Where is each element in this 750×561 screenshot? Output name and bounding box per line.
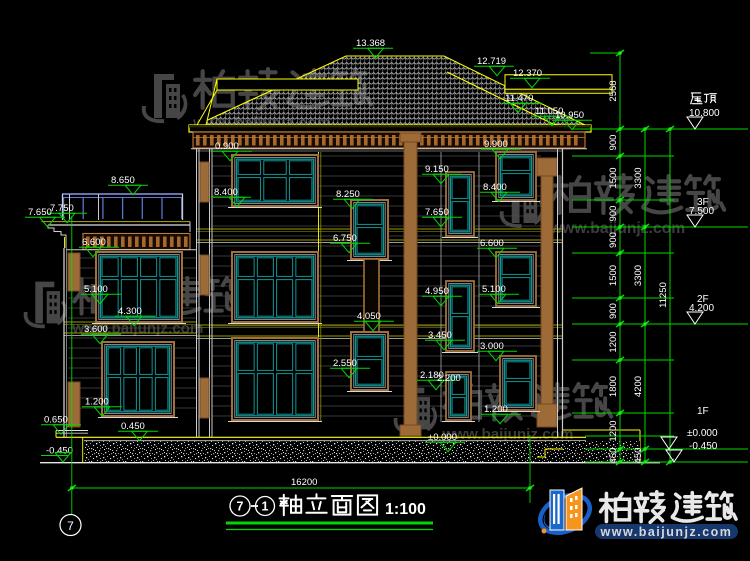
svg-text:7.650: 7.650 — [425, 207, 449, 218]
svg-text:1200: 1200 — [608, 331, 619, 352]
svg-text:1500: 1500 — [608, 265, 619, 286]
svg-text:4.300: 4.300 — [118, 306, 142, 317]
svg-text:8.250: 8.250 — [336, 189, 360, 200]
svg-text:13.368: 13.368 — [356, 38, 385, 49]
svg-text:2.200: 2.200 — [437, 373, 461, 384]
svg-text:±0.000: ±0.000 — [428, 432, 457, 443]
svg-text:1.200: 1.200 — [484, 404, 508, 415]
svg-text:3300: 3300 — [633, 265, 644, 286]
svg-text:12.370: 12.370 — [513, 68, 542, 79]
svg-text:6.600: 6.600 — [480, 238, 504, 249]
svg-text:11250: 11250 — [658, 282, 669, 308]
svg-text:16200: 16200 — [291, 477, 317, 488]
svg-text:11.470: 11.470 — [505, 93, 533, 104]
svg-text:1:100: 1:100 — [385, 501, 426, 518]
svg-text:7.750: 7.750 — [50, 203, 74, 214]
svg-text:www.baijunjz.com: www.baijunjz.com — [600, 525, 733, 539]
svg-text:3.600: 3.600 — [84, 324, 108, 335]
svg-text:8.400: 8.400 — [214, 187, 238, 198]
svg-text:10.950: 10.950 — [555, 110, 584, 121]
svg-text:7.650: 7.650 — [28, 207, 52, 218]
svg-text:6.600: 6.600 — [82, 237, 106, 248]
svg-text:450: 450 — [633, 448, 644, 464]
svg-text:7: 7 — [67, 519, 74, 533]
svg-text:7: 7 — [237, 500, 244, 514]
svg-text:12.719: 12.719 — [477, 56, 506, 67]
svg-text:9.150: 9.150 — [425, 164, 449, 175]
svg-text:8.400: 8.400 — [483, 182, 507, 193]
svg-text:900: 900 — [608, 135, 619, 151]
svg-text:4.950: 4.950 — [425, 286, 449, 297]
svg-text:0.900: 0.900 — [215, 141, 239, 152]
svg-text:0.650: 0.650 — [44, 415, 68, 426]
svg-text:3300: 3300 — [633, 167, 644, 188]
svg-text:2568: 2568 — [608, 80, 619, 101]
svg-text:1.200: 1.200 — [85, 397, 109, 408]
svg-text:2.550: 2.550 — [333, 358, 357, 369]
svg-text:3.450: 3.450 — [428, 330, 452, 341]
svg-text:450: 450 — [608, 448, 619, 464]
svg-text:1500: 1500 — [608, 167, 619, 188]
svg-text:9.900: 9.900 — [484, 139, 508, 150]
svg-text:1F: 1F — [697, 406, 709, 417]
svg-text:5.100: 5.100 — [84, 284, 108, 295]
svg-text:5.100: 5.100 — [482, 284, 506, 295]
svg-text:0.450: 0.450 — [121, 421, 145, 432]
svg-text:-0.450: -0.450 — [689, 441, 718, 452]
svg-text:900: 900 — [608, 206, 619, 222]
svg-text:1: 1 — [262, 500, 269, 514]
svg-text:900: 900 — [608, 303, 619, 319]
svg-text:900: 900 — [608, 232, 619, 248]
svg-text:8.650: 8.650 — [111, 175, 135, 186]
svg-text:6.750: 6.750 — [333, 233, 357, 244]
svg-text:±0.000: ±0.000 — [687, 428, 718, 439]
svg-text:1200: 1200 — [608, 420, 619, 441]
svg-text:4.050: 4.050 — [357, 311, 381, 322]
svg-text:3.000: 3.000 — [480, 341, 504, 352]
svg-text:4200: 4200 — [633, 376, 644, 397]
svg-text:1800: 1800 — [608, 376, 619, 397]
